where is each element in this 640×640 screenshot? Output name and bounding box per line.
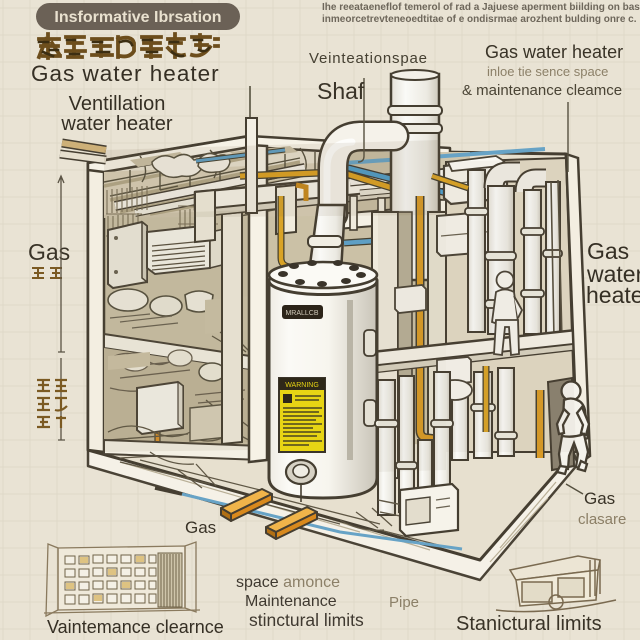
svg-text:inloe tie sence space: inloe tie sence space bbox=[487, 64, 608, 79]
svg-text:Insformative Ibrsation: Insformative Ibrsation bbox=[54, 9, 221, 26]
svg-text:Shaf: Shaf bbox=[317, 78, 365, 104]
svg-text:Ihe reeataeneflof temerol of r: Ihe reeataeneflof temerol of rad a Jajue… bbox=[322, 2, 640, 13]
svg-text:Ventillation: Ventillation bbox=[69, 93, 166, 115]
svg-text:Stanictural limits: Stanictural limits bbox=[456, 613, 602, 635]
svg-text:Vaintemance clearnce: Vaintemance clearnce bbox=[47, 617, 224, 637]
svg-text:Pipe: Pipe bbox=[389, 594, 419, 611]
svg-text:clasare: clasare bbox=[578, 511, 626, 528]
svg-text:stinctural limits: stinctural limits bbox=[249, 610, 364, 630]
svg-text:Gas: Gas bbox=[185, 518, 216, 537]
svg-text:Gas water heater: Gas water heater bbox=[31, 61, 220, 86]
svg-text:Gas: Gas bbox=[28, 239, 70, 265]
svg-text:heater: heater bbox=[586, 282, 640, 308]
svg-text:Gas water heater: Gas water heater bbox=[485, 42, 623, 62]
svg-text:Gas: Gas bbox=[584, 489, 615, 508]
svg-text:inmeorcetrevteneoedtitae of e: inmeorcetrevteneoedtitae of e ondisrmae … bbox=[322, 14, 637, 25]
svg-text:Veinteationspae: Veinteationspae bbox=[309, 50, 428, 67]
svg-text:& maintenance cleamce: & maintenance cleamce bbox=[462, 82, 622, 99]
svg-text:space amonce: space amonce bbox=[236, 574, 340, 591]
svg-text:Maintenance: Maintenance bbox=[245, 593, 337, 610]
svg-text:water heater: water heater bbox=[60, 113, 173, 135]
